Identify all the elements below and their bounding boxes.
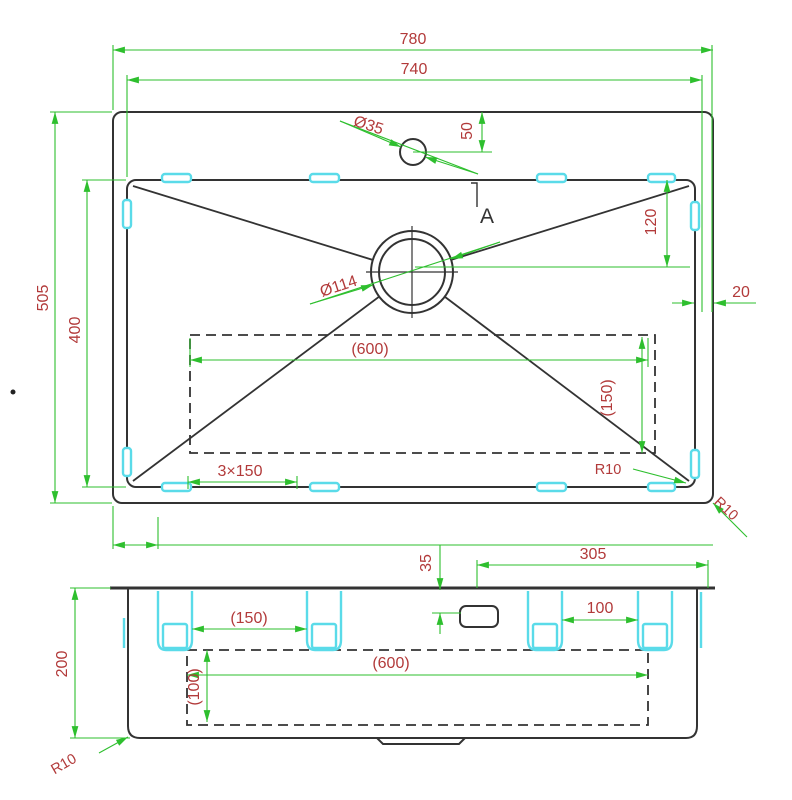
pad-dashed-outline-side: [187, 650, 648, 725]
dim-200-label: 200: [54, 651, 71, 678]
faucet-hole-section: [460, 606, 498, 627]
clip-tab: [162, 174, 191, 182]
section-a-label: A: [480, 205, 494, 228]
dim-35-label: 35: [418, 554, 435, 572]
clip-tab: [537, 483, 566, 491]
dim-150-side-label: (150): [230, 610, 267, 627]
clip-tab: [123, 200, 131, 228]
drawing-canvas: A 780 740 505 400 50 Ø35 Ø114 120 20 (60…: [0, 0, 792, 800]
clip-foot: [643, 624, 667, 648]
dim-305-label: 305: [580, 546, 607, 563]
stray-dot: [11, 390, 16, 395]
top-view: A 780 740 505 400 50 Ø35 Ø114 120 20 (60…: [35, 31, 756, 549]
side-view-geometry: [110, 588, 715, 744]
dim-400-label: 400: [67, 317, 84, 344]
dim-100v-side-label: (100): [186, 668, 203, 705]
clip-tab: [162, 483, 191, 491]
clip-tab: [648, 483, 675, 491]
clip-tab: [691, 202, 699, 230]
clip-foot: [533, 624, 557, 648]
clip-tab: [310, 483, 339, 491]
dim-50-label: 50: [459, 122, 476, 140]
dim-3x150-label: 3×150: [218, 463, 263, 480]
r10-outer-label: R10: [711, 494, 741, 524]
dim-100-side-label: 100: [587, 600, 614, 617]
dim-740-label: 740: [401, 61, 428, 78]
clip-tab: [537, 174, 566, 182]
dim-120-label: 120: [643, 209, 660, 236]
top-view-geometry: [113, 112, 713, 503]
dim-20-label: 20: [732, 284, 750, 301]
dim-505-label: 505: [35, 285, 52, 312]
side-view-dimension-labels: 200 305 35 (150) 100 (600) (100) R10: [48, 546, 613, 778]
clip-tab: [648, 174, 675, 182]
sink-drawing: A 780 740 505 400 50 Ø35 Ø114 120 20 (60…: [0, 0, 792, 800]
r10-side-label: R10: [48, 751, 79, 778]
clip-tab: [123, 448, 131, 476]
side-view: 200 305 35 (150) 100 (600) (100) R10: [48, 545, 715, 778]
dim-600-side-label: (600): [372, 655, 409, 672]
clip-tab: [310, 174, 339, 182]
dim-600-top-label: (600): [351, 341, 388, 358]
clip-foot: [312, 624, 336, 648]
clip-tab: [691, 450, 699, 478]
clip-foot: [163, 624, 187, 648]
r10-bowl-label: R10: [595, 462, 622, 478]
dim-780-label: 780: [400, 31, 427, 48]
dim-150-top-label: (150): [599, 379, 616, 416]
